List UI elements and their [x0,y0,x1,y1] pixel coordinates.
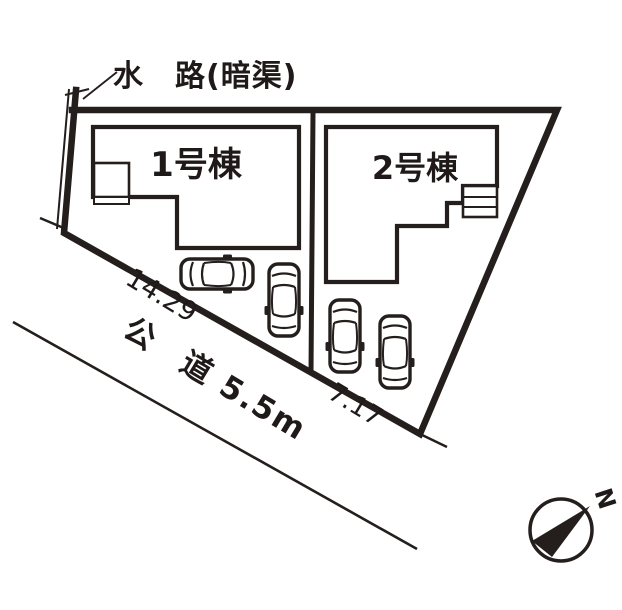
house-1-label: 1号棟 [150,145,243,185]
car-icon [265,264,304,336]
building-1-porch-step [94,197,129,204]
boundary-extension-right-tick [420,434,447,447]
car-icon [376,316,415,388]
site-plan-drawing: 水 路(暗渠) 1号棟 2号棟 14.29 公 道 5.5m 7.17 N [0,0,622,610]
plot-divider-line [311,112,313,372]
building-2-porch [463,186,497,217]
compass-needle-icon [532,506,590,557]
car-icon [181,255,253,294]
house-2-label: 2号棟 [372,149,459,187]
building-1-porch [94,163,129,197]
site-plan-page: 水 路(暗渠) 1号棟 2号棟 14.29 公 道 5.5m 7.17 N [0,0,622,610]
compass: N [530,485,621,561]
waterway-label: 水 路(暗渠) [113,59,297,94]
waterway-leader-line [83,72,117,99]
frontage-dimension-2: 7.17 [323,377,388,433]
car-icon [326,300,365,372]
compass-north-label: N [589,485,622,513]
